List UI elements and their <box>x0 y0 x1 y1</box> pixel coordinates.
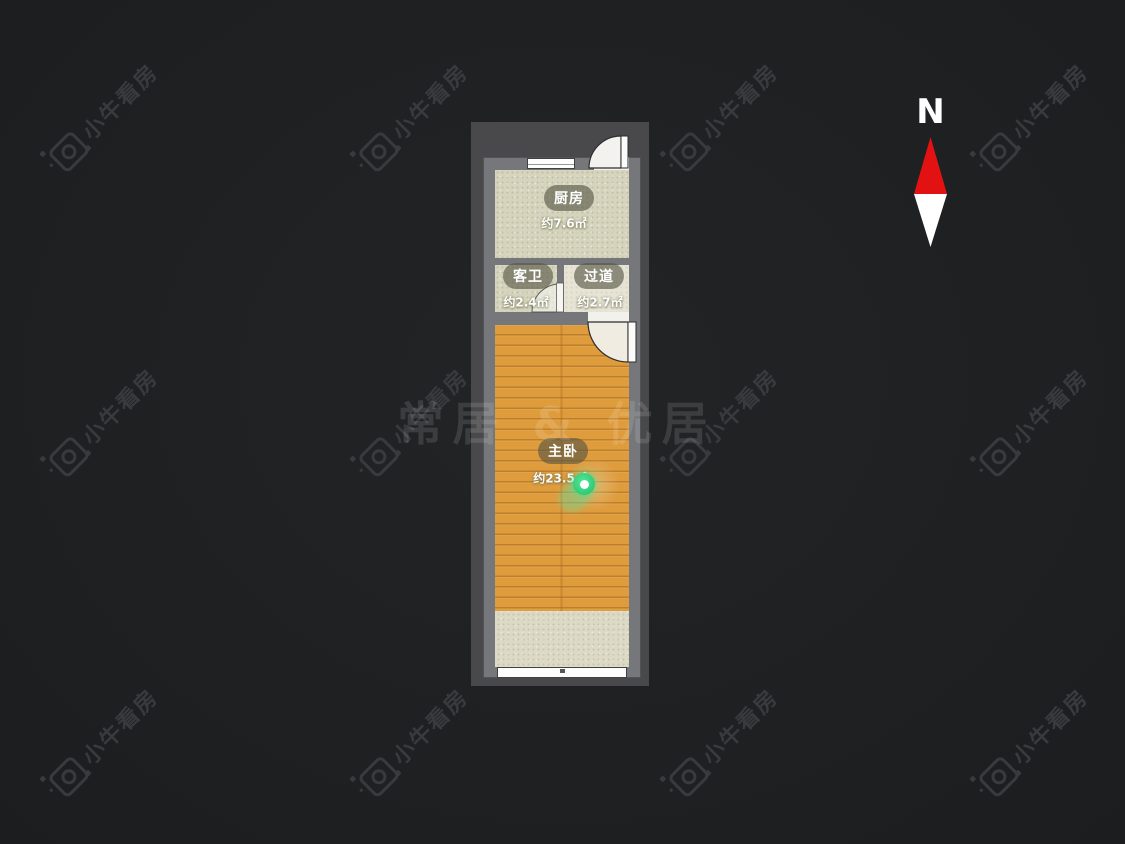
brand-watermark-text: 小牛看房 <box>74 681 165 772</box>
brand-watermark: 小牛看房 <box>666 681 785 800</box>
brand-watermark: 小牛看房 <box>666 56 785 175</box>
brand-watermark: 小牛看房 <box>46 56 165 175</box>
brand-watermark: 小牛看房 <box>976 361 1095 480</box>
room-label-kitchen: 厨房 <box>544 185 594 211</box>
camera-logo-icon <box>47 130 91 174</box>
pin-core <box>580 480 589 489</box>
brand-watermark: 小牛看房 <box>976 681 1095 800</box>
room-label-bathroom: 客卫 <box>503 263 553 289</box>
brand-watermark: 小牛看房 <box>976 56 1095 175</box>
entrance-door-leaf <box>621 136 628 168</box>
brand-watermark-text: 小牛看房 <box>694 681 785 772</box>
brand-watermark-text: 小牛看房 <box>1004 681 1095 772</box>
compass-arrow-icon <box>913 137 949 249</box>
brand-watermark: 小牛看房 <box>356 681 475 800</box>
brand-watermark-text: 小牛看房 <box>1004 56 1095 147</box>
room-label-hallway: 过道 <box>574 263 624 289</box>
camera-logo-icon <box>47 755 91 799</box>
center-watermark-text: 常居 & 优居 <box>397 388 716 454</box>
camera-logo-icon <box>977 755 1021 799</box>
room-area-hallway: 约2.7㎡ <box>577 292 622 311</box>
camera-logo-icon <box>47 435 91 479</box>
compass: N <box>900 95 962 249</box>
bathroom-door-leaf <box>557 283 564 312</box>
bedroom-door-icon <box>588 322 628 362</box>
camera-logo-icon <box>667 755 711 799</box>
compass-north-label: N <box>900 95 962 129</box>
room-area-bathroom: 约2.4㎡ <box>503 292 548 311</box>
brand-watermark-text: 小牛看房 <box>694 56 785 147</box>
brand-watermark: 小牛看房 <box>356 56 475 175</box>
camera-logo-icon <box>667 130 711 174</box>
room-area-kitchen: 约7.6㎡ <box>541 213 586 232</box>
camera-logo-icon <box>357 755 401 799</box>
pin-dot-icon <box>573 473 595 495</box>
brand-watermark-text: 小牛看房 <box>384 56 475 147</box>
brand-watermark-text: 小牛看房 <box>74 56 165 147</box>
camera-logo-icon <box>357 435 401 479</box>
bedroom-door-leaf <box>628 322 636 362</box>
entrance-door-icon <box>589 136 621 168</box>
camera-logo-icon <box>357 130 401 174</box>
brand-watermark: 小牛看房 <box>46 681 165 800</box>
brand-watermark-text: 小牛看房 <box>74 361 165 452</box>
brand-watermark-text: 小牛看房 <box>384 681 475 772</box>
floorplan-page: 小牛看房 小牛看房 小牛看房 小牛看房 小牛看房 小牛看房 小牛看房 小牛看房 … <box>0 0 1125 844</box>
camera-logo-icon <box>977 435 1021 479</box>
brand-watermark-text: 小牛看房 <box>1004 361 1095 452</box>
brand-watermark: 小牛看房 <box>46 361 165 480</box>
camera-logo-icon <box>977 130 1021 174</box>
